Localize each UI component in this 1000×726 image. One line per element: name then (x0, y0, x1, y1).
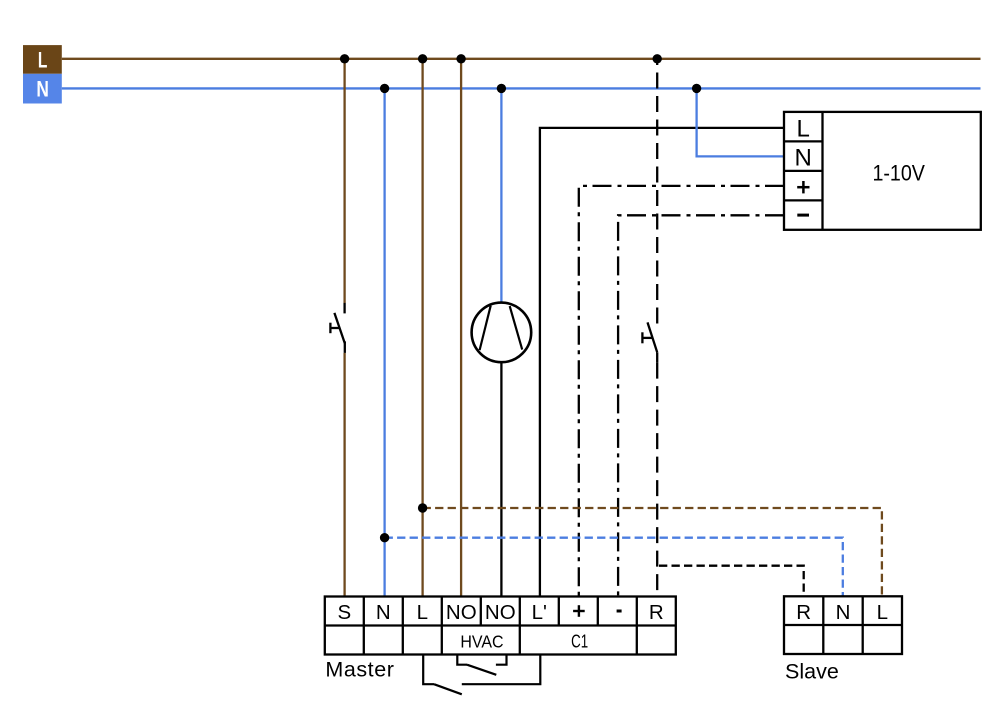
svg-text:NO: NO (485, 601, 516, 624)
svg-text:R: R (649, 601, 664, 624)
svg-text:L: L (797, 116, 810, 143)
svg-text:Master: Master (325, 658, 394, 682)
svg-text:C1: C1 (571, 632, 588, 652)
svg-text:NO: NO (446, 601, 477, 624)
svg-text:N: N (795, 145, 812, 172)
svg-text:HVAC: HVAC (460, 632, 503, 652)
svg-text:L: L (877, 601, 888, 624)
svg-text:L': L' (532, 601, 547, 624)
svg-text:L: L (417, 601, 428, 624)
svg-text:L: L (38, 47, 48, 72)
svg-text:N: N (376, 601, 391, 624)
svg-text:1-10V: 1-10V (872, 161, 925, 186)
svg-text:N: N (36, 77, 49, 102)
svg-text:R: R (796, 601, 811, 624)
svg-text:N: N (836, 601, 851, 624)
svg-text:Slave: Slave (785, 660, 839, 684)
svg-text:S: S (337, 601, 351, 624)
